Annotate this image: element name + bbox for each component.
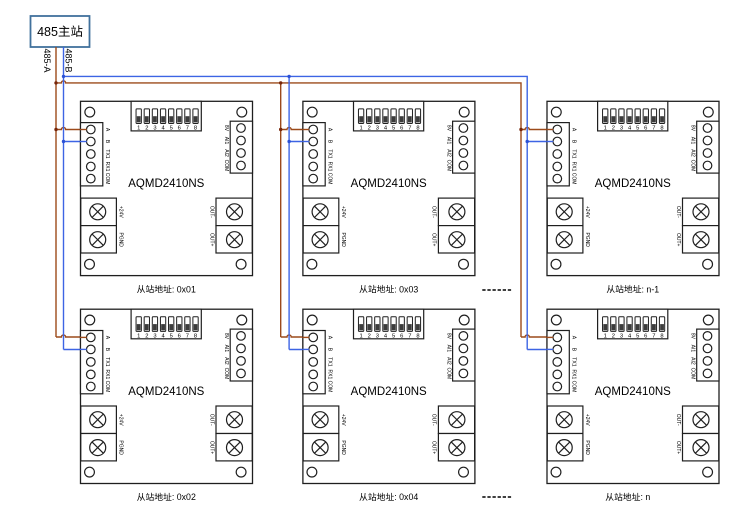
svg-text:COM: COM (571, 173, 577, 185)
svg-text:RX1: RX1 (327, 370, 333, 380)
svg-text:AI1: AI1 (445, 137, 451, 145)
svg-text:6: 6 (644, 126, 647, 132)
svg-text:5: 5 (170, 334, 173, 340)
svg-text:8V: 8V (689, 333, 695, 340)
svg-text:3: 3 (620, 334, 623, 340)
svg-text:+24V: +24V (340, 414, 346, 426)
svg-text:RX1: RX1 (104, 162, 110, 172)
svg-text:AQMD2410NS: AQMD2410NS (128, 178, 204, 190)
svg-text:AI1: AI1 (689, 345, 695, 353)
svg-text:OUT-: OUT- (208, 414, 214, 426)
svg-text:PGND: PGND (118, 232, 124, 247)
svg-text:AI1: AI1 (223, 345, 229, 353)
svg-text:7: 7 (186, 334, 189, 340)
svg-text:AI1: AI1 (689, 137, 695, 145)
svg-text:OUT-: OUT- (431, 414, 437, 426)
svg-text:AQMD2410NS: AQMD2410NS (351, 386, 427, 398)
svg-text:RX1: RX1 (571, 370, 577, 380)
svg-text:RX1: RX1 (571, 162, 577, 172)
svg-text:TX1: TX1 (571, 357, 577, 366)
svg-text:5: 5 (636, 126, 639, 132)
svg-text:2: 2 (368, 334, 371, 340)
svg-text:8: 8 (194, 126, 197, 132)
svg-text:6: 6 (400, 126, 403, 132)
svg-text:AQMD2410NS: AQMD2410NS (351, 178, 427, 190)
svg-text:PGND: PGND (340, 440, 346, 455)
svg-text:5: 5 (170, 126, 173, 132)
svg-text:: 0x03: : 0x03 (394, 284, 418, 294)
svg-text:3: 3 (376, 334, 379, 340)
svg-text:COM: COM (223, 368, 229, 380)
svg-text:: 0x04: : 0x04 (394, 492, 418, 502)
svg-text:8V: 8V (223, 333, 229, 340)
svg-text:+24V: +24V (340, 206, 346, 218)
svg-text:1: 1 (359, 126, 362, 132)
svg-text:COM: COM (445, 160, 451, 172)
svg-text:7: 7 (652, 126, 655, 132)
svg-text:OUT-: OUT- (208, 206, 214, 218)
svg-text:RX1: RX1 (327, 162, 333, 172)
svg-text:7: 7 (652, 334, 655, 340)
svg-text:7: 7 (408, 334, 411, 340)
svg-text:2: 2 (368, 126, 371, 132)
svg-text:OUT-: OUT- (431, 206, 437, 218)
svg-text:COM: COM (223, 160, 229, 172)
svg-text:COM: COM (571, 381, 577, 393)
svg-text:OUT+: OUT+ (675, 441, 681, 455)
svg-text:3: 3 (620, 126, 623, 132)
svg-text:AI2: AI2 (223, 149, 229, 157)
svg-text:OUT+: OUT+ (208, 233, 214, 247)
svg-text:TX1: TX1 (327, 357, 333, 366)
svg-text:6: 6 (178, 126, 181, 132)
svg-text:OUT-: OUT- (675, 206, 681, 218)
svg-text:+24V: +24V (584, 414, 590, 426)
svg-text:6: 6 (644, 334, 647, 340)
svg-text:3: 3 (376, 126, 379, 132)
svg-text:5: 5 (392, 334, 395, 340)
svg-text:8: 8 (416, 126, 419, 132)
svg-text:AI2: AI2 (445, 149, 451, 157)
svg-text:AQMD2410NS: AQMD2410NS (128, 386, 204, 398)
svg-text:COM: COM (104, 173, 110, 185)
svg-text:7: 7 (408, 126, 411, 132)
svg-text:AI2: AI2 (689, 149, 695, 157)
svg-text:6: 6 (400, 334, 403, 340)
svg-text:PGND: PGND (584, 232, 590, 247)
svg-text:+24V: +24V (118, 414, 124, 426)
svg-text:8V: 8V (445, 125, 451, 132)
svg-text:+24V: +24V (118, 206, 124, 218)
svg-text:PGND: PGND (118, 440, 124, 455)
svg-text:1: 1 (604, 334, 607, 340)
svg-text:: n-1: : n-1 (642, 284, 660, 294)
svg-text:TX1: TX1 (104, 357, 110, 366)
svg-text:COM: COM (445, 368, 451, 380)
svg-text:3: 3 (153, 126, 156, 132)
svg-text:PGND: PGND (340, 232, 346, 247)
svg-text:: 0x02: : 0x02 (172, 492, 196, 502)
svg-text:AQMD2410NS: AQMD2410NS (595, 386, 671, 398)
svg-text:RX1: RX1 (104, 370, 110, 380)
svg-text:OUT+: OUT+ (675, 233, 681, 247)
svg-text:7: 7 (186, 126, 189, 132)
svg-text:2: 2 (612, 126, 615, 132)
svg-text:2: 2 (612, 334, 615, 340)
svg-text:COM: COM (104, 381, 110, 393)
svg-text:1: 1 (137, 334, 140, 340)
svg-text:AI1: AI1 (445, 345, 451, 353)
svg-text:8V: 8V (445, 333, 451, 340)
svg-text:2: 2 (145, 334, 148, 340)
svg-text:OUT+: OUT+ (431, 441, 437, 455)
svg-text:2: 2 (145, 126, 148, 132)
svg-text:485: 485 (37, 25, 58, 39)
svg-text:AI2: AI2 (689, 357, 695, 365)
svg-text:TX1: TX1 (104, 149, 110, 158)
svg-text:+24V: +24V (584, 206, 590, 218)
svg-text:COM: COM (689, 160, 695, 172)
svg-text:5: 5 (392, 126, 395, 132)
svg-text:AI2: AI2 (223, 357, 229, 365)
svg-text:1: 1 (359, 334, 362, 340)
svg-text:OUT+: OUT+ (208, 441, 214, 455)
svg-text:1: 1 (604, 126, 607, 132)
svg-text:8V: 8V (223, 125, 229, 132)
svg-text:6: 6 (178, 334, 181, 340)
svg-text:OUT-: OUT- (675, 414, 681, 426)
svg-text:485-A: 485-A (42, 49, 52, 73)
svg-text:485-B: 485-B (63, 49, 73, 73)
svg-text:COM: COM (327, 381, 333, 393)
svg-text:OUT+: OUT+ (431, 233, 437, 247)
svg-text:1: 1 (137, 126, 140, 132)
svg-text:8: 8 (660, 126, 663, 132)
svg-text:: 0x01: : 0x01 (172, 284, 196, 294)
svg-text:8: 8 (416, 334, 419, 340)
svg-text:3: 3 (153, 334, 156, 340)
svg-text:AQMD2410NS: AQMD2410NS (595, 178, 671, 190)
svg-text:8V: 8V (689, 125, 695, 132)
svg-text:8: 8 (660, 334, 663, 340)
svg-text:AI2: AI2 (445, 357, 451, 365)
svg-text:5: 5 (636, 334, 639, 340)
svg-text:TX1: TX1 (571, 149, 577, 158)
svg-text:: n: : n (640, 492, 650, 502)
svg-text:AI1: AI1 (223, 137, 229, 145)
svg-text:PGND: PGND (584, 440, 590, 455)
svg-text:8: 8 (194, 334, 197, 340)
svg-text:COM: COM (327, 173, 333, 185)
svg-text:TX1: TX1 (327, 149, 333, 158)
svg-text:COM: COM (689, 368, 695, 380)
